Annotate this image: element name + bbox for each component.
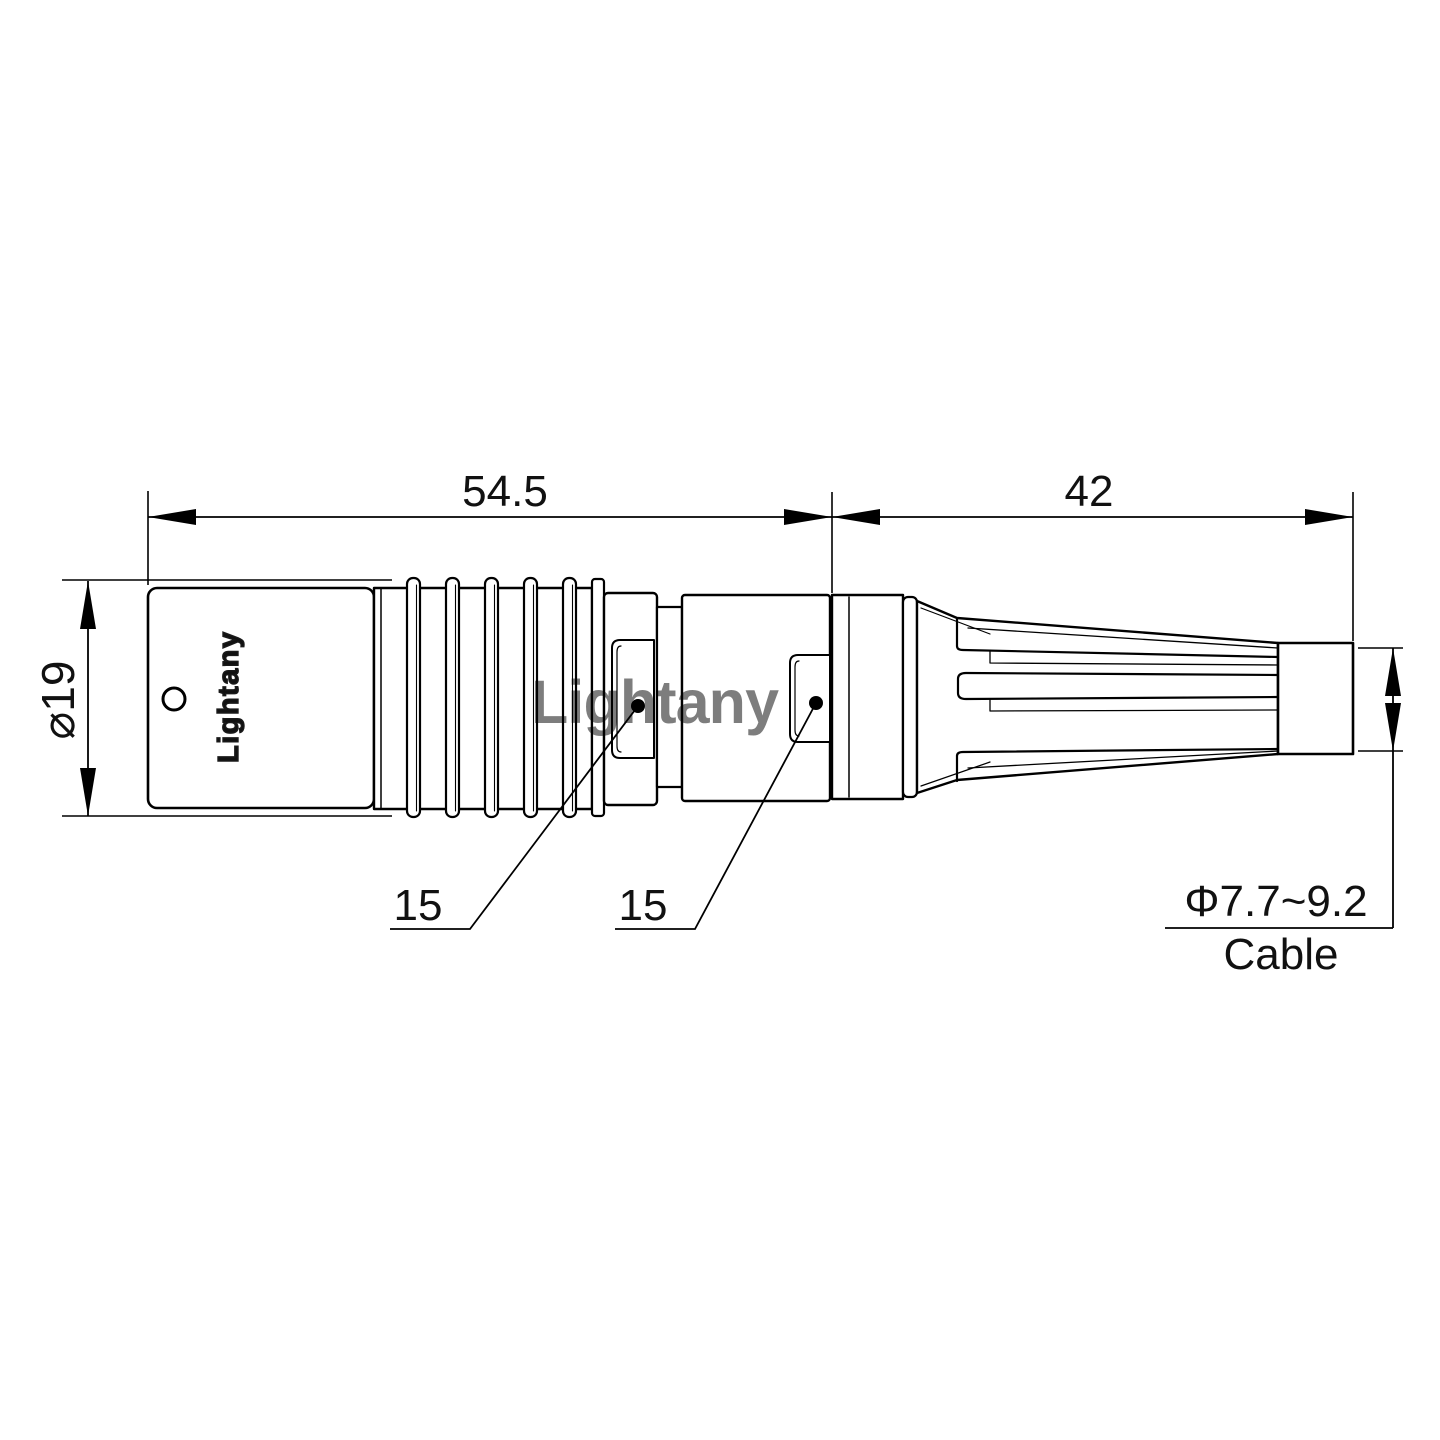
- strain-relief-ring: [903, 597, 917, 797]
- watermark-text: Lightany: [531, 668, 779, 736]
- dim-text-cable-label: Cable: [1224, 930, 1339, 979]
- dim-text-front-length: 54.5: [462, 467, 548, 516]
- shell-engraved-brand-text: Lightany: [213, 631, 245, 763]
- cable-end-cap: [1278, 643, 1353, 754]
- dim-text-flat-2: 15: [619, 881, 668, 930]
- connector-drawing-svg: Lightany Lightany: [0, 0, 1440, 1440]
- dim-text-flat-1: 15: [394, 881, 443, 930]
- leader-dot-flat-1: [631, 699, 645, 713]
- leader-dot-flat-2: [809, 696, 823, 710]
- dim-text-cable-range: Φ7.7~9.2: [1184, 877, 1367, 926]
- technical-drawing-canvas: Lightany Lightany: [0, 0, 1440, 1440]
- dim-text-rear-length: 42: [1065, 467, 1114, 516]
- rear-keyway-window: [790, 655, 830, 742]
- strain-relief-collar: [832, 595, 903, 799]
- shell-index-circle: [163, 688, 185, 710]
- dim-text-shell-diameter: ⌀19: [32, 661, 84, 740]
